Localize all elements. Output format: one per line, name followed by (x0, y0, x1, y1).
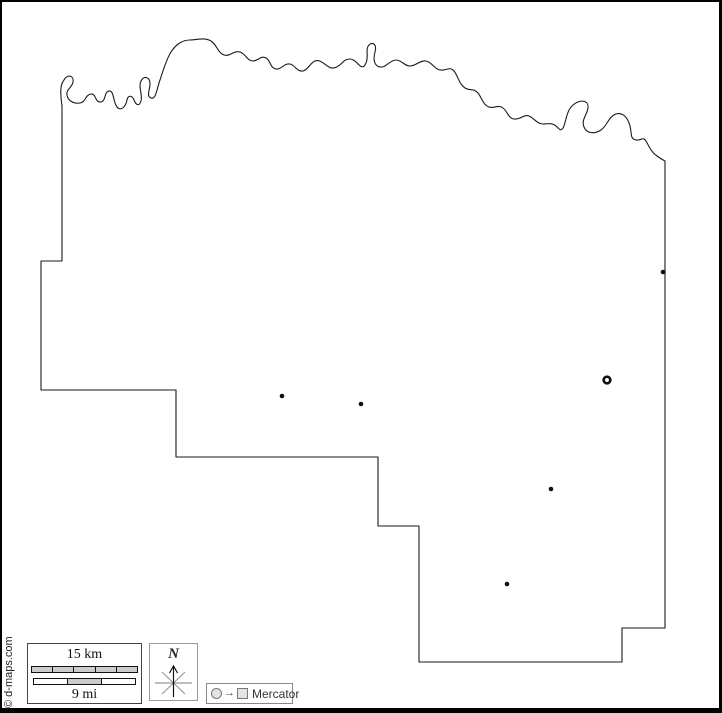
county-seat-marker (604, 377, 611, 384)
globe-circle-icon (211, 688, 222, 699)
scale-segment (52, 666, 74, 673)
town-marker (549, 487, 554, 492)
map-page: © d-maps.com 15 km 9 mi N → (0, 0, 722, 713)
scale-mi-bar (33, 678, 137, 685)
scale-km-label: 15 km (28, 646, 141, 663)
scale-bar-box: 15 km 9 mi (27, 643, 142, 704)
scale-mi-label: 9 mi (28, 686, 141, 703)
town-marker (359, 402, 364, 407)
town-marker (661, 270, 666, 275)
flat-map-square-icon (237, 688, 248, 699)
scale-segment (116, 666, 138, 673)
projection-label: Mercator (252, 687, 299, 701)
scale-segment (67, 678, 102, 685)
scale-segment (33, 678, 68, 685)
compass-star-icon (150, 663, 197, 700)
town-marker (280, 394, 285, 399)
county-outline (41, 39, 665, 662)
scale-segment (95, 666, 117, 673)
scale-km-bar (31, 666, 138, 673)
north-arrow-box: N (149, 643, 198, 701)
north-label: N (150, 645, 197, 663)
projection-box: → Mercator (206, 683, 293, 704)
town-marker (505, 582, 510, 587)
scale-segment (31, 666, 53, 673)
outline-map (0, 0, 722, 713)
scale-segment (101, 678, 136, 685)
scale-segment (73, 666, 95, 673)
copyright-watermark: © d-maps.com (3, 622, 15, 708)
arrow-right-icon: → (224, 688, 235, 699)
